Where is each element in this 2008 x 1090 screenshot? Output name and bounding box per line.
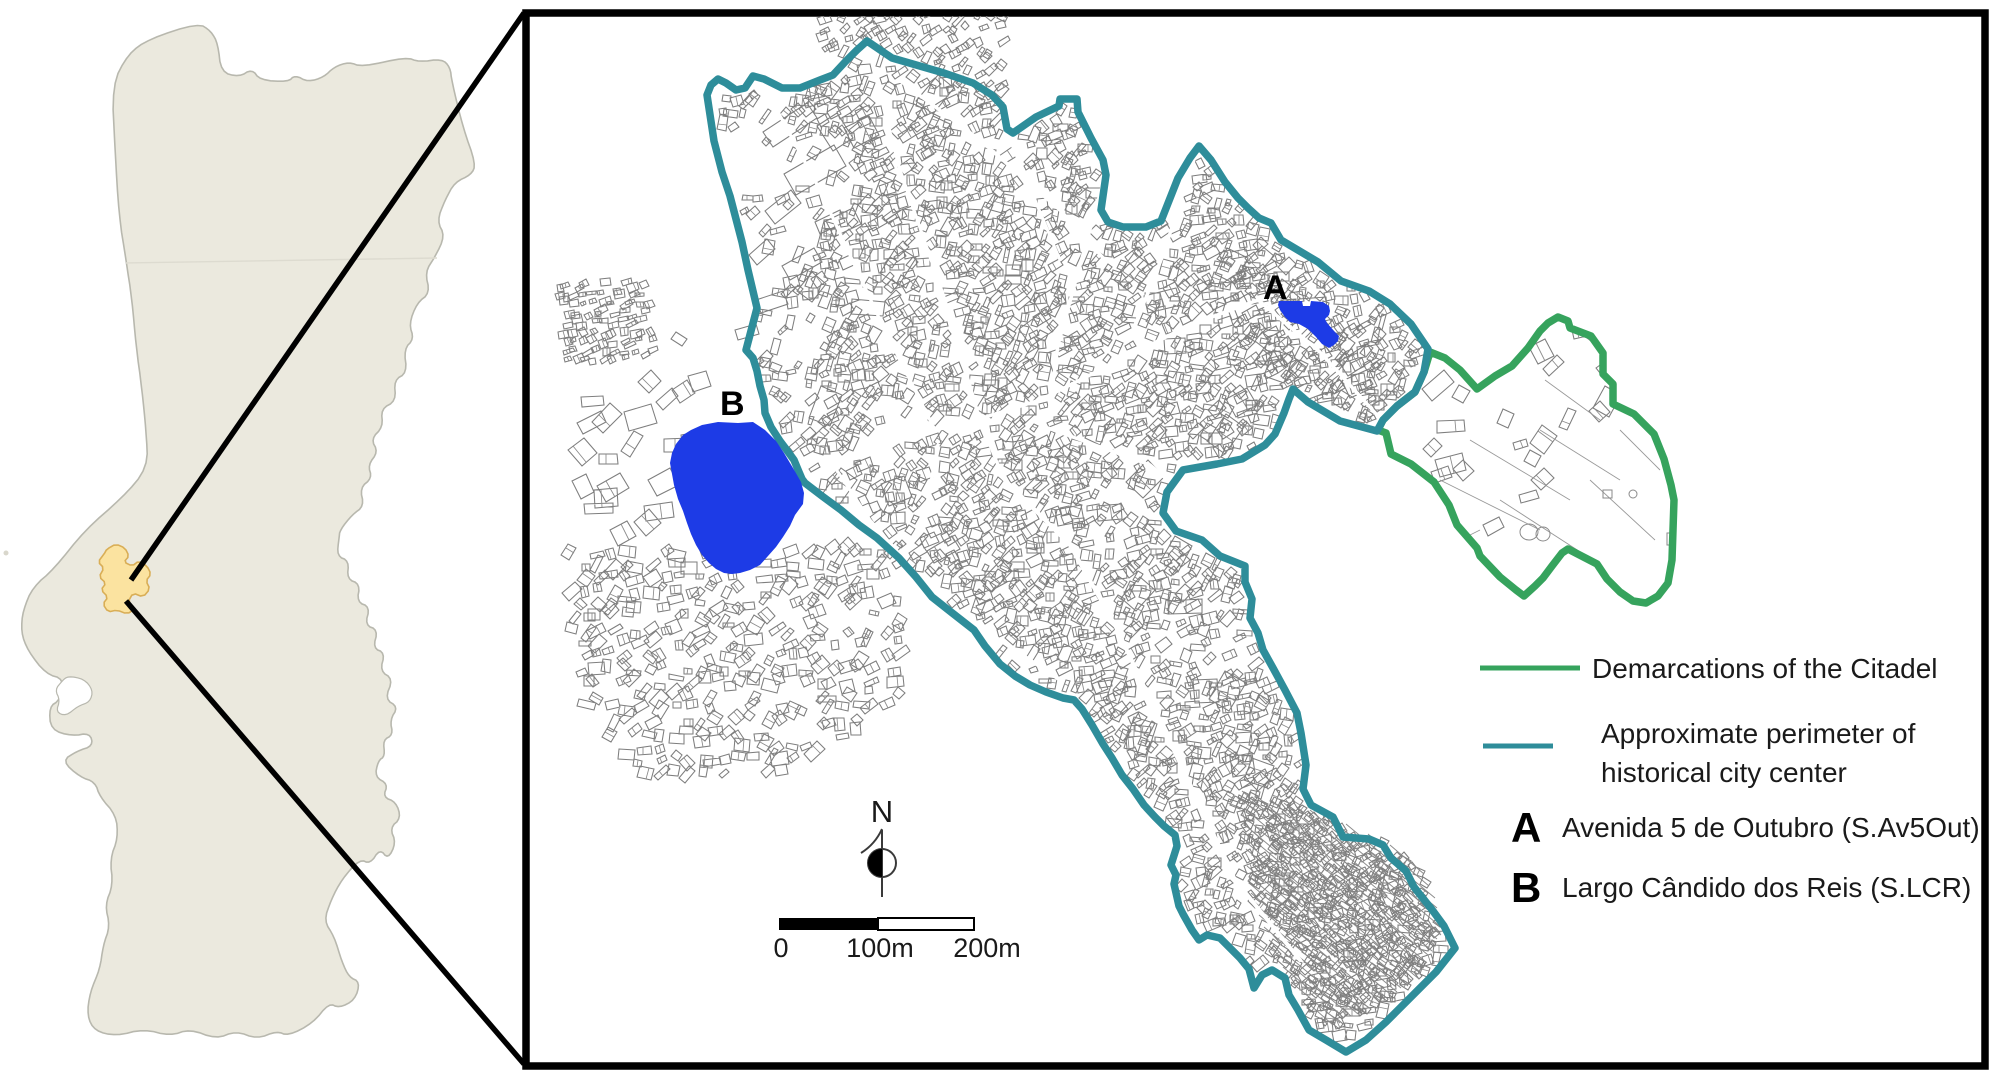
- svg-text:Demarcations of the Citadel: Demarcations of the Citadel: [1592, 653, 1938, 684]
- svg-text:Avenida 5 de Outubro (S.Av5Out: Avenida 5 de Outubro (S.Av5Out): [1562, 812, 1980, 843]
- svg-text:0: 0: [773, 933, 788, 963]
- svg-text:B: B: [720, 385, 745, 423]
- svg-text:200m: 200m: [953, 933, 1021, 963]
- svg-text:A: A: [1511, 804, 1541, 851]
- svg-text:100m: 100m: [846, 933, 914, 963]
- svg-text:B: B: [1511, 864, 1541, 911]
- svg-text:Largo Cândido dos Reis (S.LCR): Largo Cândido dos Reis (S.LCR): [1562, 872, 1971, 903]
- svg-text:Approximate perimeter of: Approximate perimeter of: [1601, 718, 1916, 749]
- svg-text:N: N: [871, 794, 893, 829]
- svg-text:A: A: [1263, 269, 1288, 307]
- svg-text:historical city center: historical city center: [1601, 757, 1847, 788]
